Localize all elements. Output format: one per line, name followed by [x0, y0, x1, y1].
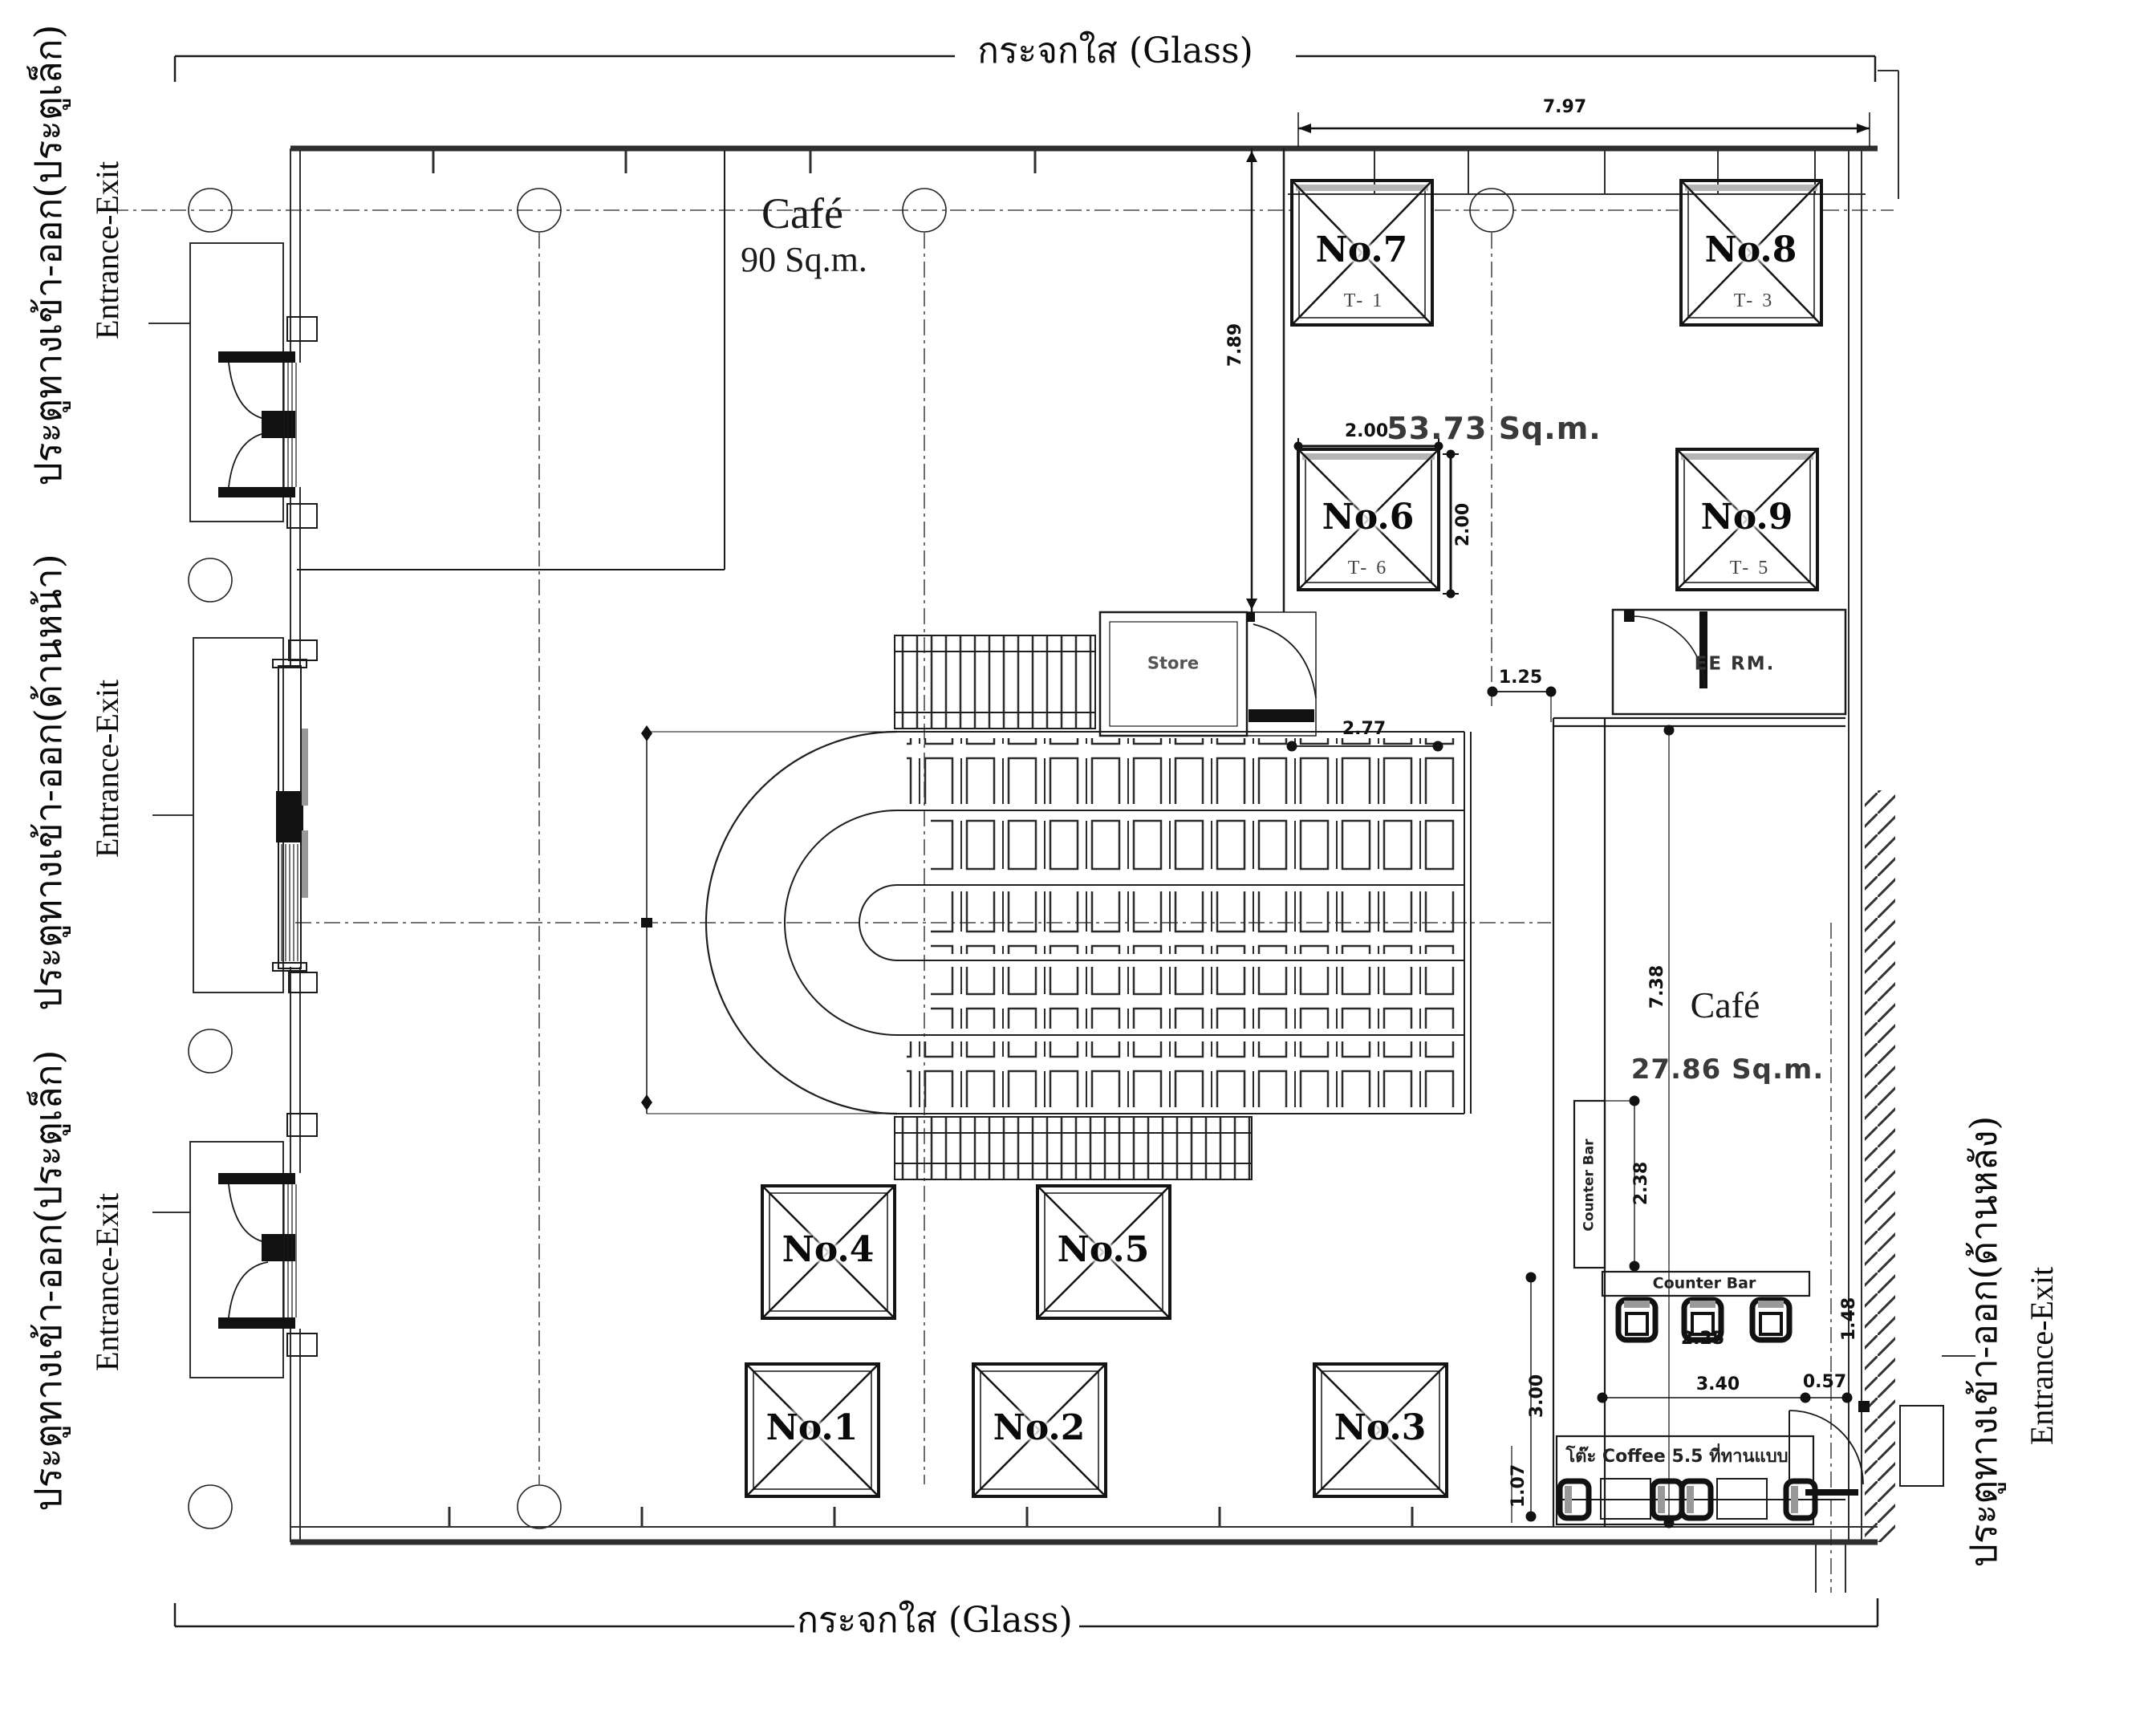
dim-no6-width: 2.00: [1345, 423, 1388, 440]
column-no4-label: No.4: [782, 1232, 875, 1268]
entrance-label-front-eng: Entrance-Exit: [91, 680, 124, 858]
entrance-door-bottom: [152, 1114, 317, 1378]
cafe-main-area: 90 Sq.m.: [741, 242, 867, 278]
column-no1-label: No.1: [766, 1411, 859, 1446]
column-no6-sub: T- 6: [1348, 558, 1388, 578]
entrance-label-top-thai: ประตูทางเข้า-ออก(ประตูเล็ก): [30, 25, 67, 486]
dim-797: [1298, 112, 1870, 147]
dim-stool: 2.25: [1681, 1330, 1724, 1348]
glass-label-bottom: กระจกใส (Glass): [797, 1603, 1073, 1638]
cafe-partition: [297, 151, 725, 570]
entrance-label-bottom-eng: Entrance-Exit: [91, 1193, 124, 1371]
entrance-door-top: [148, 243, 317, 528]
dim-top: 7.97: [1543, 99, 1586, 116]
counter-bar-vertical-label: Counter Bar: [1583, 1139, 1597, 1231]
dim-no6-height: 2.00: [1455, 503, 1472, 546]
entrance-door-front: [152, 638, 317, 993]
column-no8-label: No.8: [1705, 233, 1797, 268]
entrance-label-bottom-thai: ประตูทางเข้า-ออก(ประตูเล็ก): [30, 1050, 67, 1512]
glass-label-top: กระจกใส (Glass): [977, 34, 1253, 69]
shaft-wall: [1252, 148, 1284, 612]
counter-bar-horizontal-label: Counter Bar: [1653, 1277, 1756, 1292]
column-no8-sub: T- 3: [1734, 291, 1774, 311]
entrance-label-top-eng: Entrance-Exit: [91, 161, 124, 339]
cafe-small-area: 27.86 Sq.m.: [1631, 1056, 1824, 1083]
column-no9-label: No.9: [1701, 500, 1793, 535]
hatched-wall: [1865, 790, 1895, 1542]
column-no7-sub: T- 1: [1344, 291, 1384, 311]
column-no9-sub: T- 5: [1730, 558, 1770, 578]
entrance-label-front-thai: ประตูทางเข้า-ออก(ด้านหน้า): [30, 554, 67, 1010]
dim-counter-length: 2.38: [1633, 1162, 1650, 1205]
entrance-label-back-thai: ประตูทางเข้า-ออก(ด้านหลัง): [1965, 1116, 2002, 1568]
cafe-small-walls: [1553, 718, 1845, 1527]
column-no7-label: No.7: [1316, 233, 1408, 268]
dim-125: [1488, 687, 1556, 722]
column-no2-label: No.2: [993, 1411, 1086, 1446]
escalator: [706, 635, 1471, 1179]
dim-cafe-height: 7.38: [1649, 965, 1667, 1009]
dim-escalator: 2.77: [1342, 721, 1386, 738]
column-no6-label: No.6: [1322, 500, 1415, 535]
dim-gap: 0.57: [1803, 1374, 1846, 1391]
cafe-main-name: Café: [761, 192, 843, 235]
floorplan-linework: [0, 0, 2156, 1709]
cafe-small-name: Café: [1691, 987, 1760, 1024]
dim-738: [1664, 725, 1674, 1528]
floorplan-sheet: กระจกใส (Glass) กระจกใส (Glass) ประตูทาง…: [0, 0, 2156, 1709]
dim-bar-width: 3.40: [1696, 1376, 1740, 1394]
dim-wall-right: 1.48: [1841, 1297, 1858, 1341]
coffee-table-label: โต๊ะ Coffee 5.5 ที่ทานแบบ: [1565, 1448, 1788, 1466]
entrance-label-back-eng: Entrance-Exit: [2026, 1267, 2058, 1445]
dim-ee-offset: 1.25: [1499, 669, 1542, 687]
dim-coffee-height: 1.07: [1510, 1464, 1528, 1508]
store-room: [1100, 612, 1316, 736]
column-no3-label: No.3: [1334, 1411, 1427, 1446]
zone-area: 53.73 Sq.m.: [1387, 413, 1601, 444]
ee-room-label: EE RM.: [1695, 656, 1776, 674]
dim-coffee-width: 3.00: [1529, 1374, 1546, 1418]
dim-shaft: 7.89: [1227, 323, 1244, 367]
store-label: Store: [1147, 656, 1199, 672]
column-no5-label: No.5: [1058, 1232, 1150, 1268]
